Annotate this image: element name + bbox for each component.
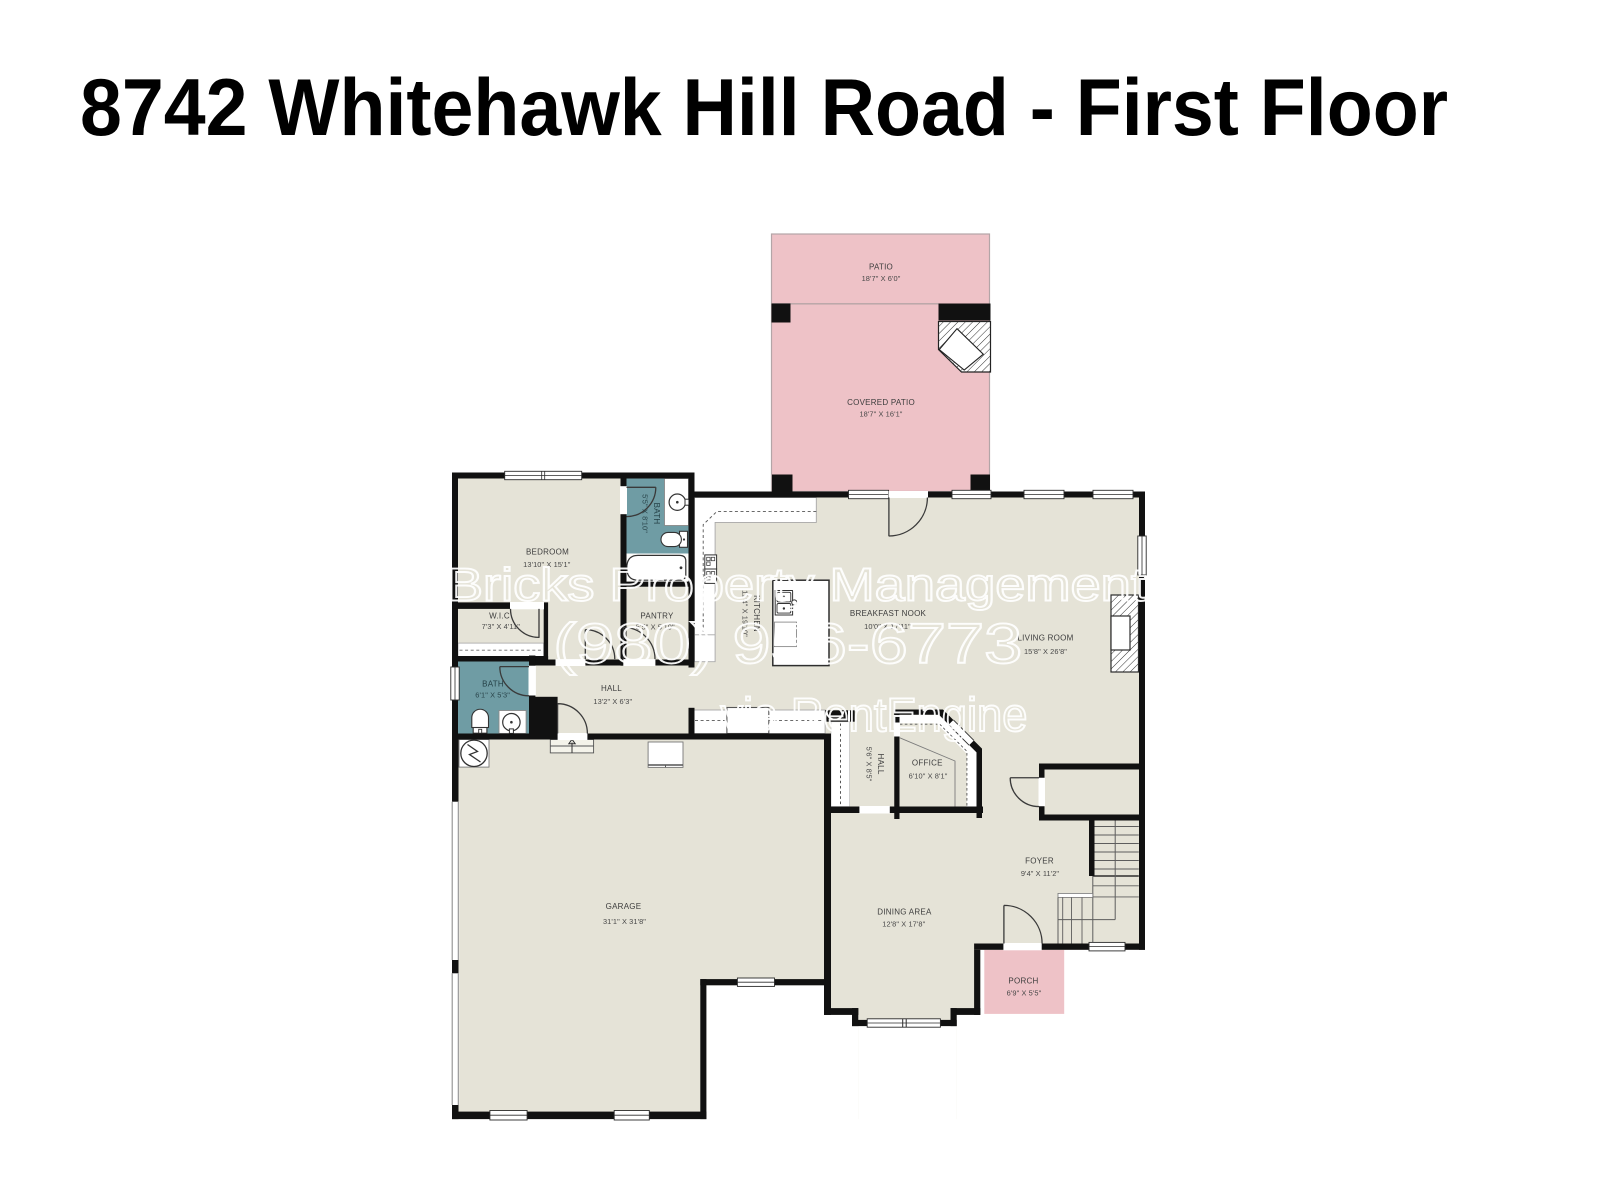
svg-text:PATIO: PATIO: [869, 263, 893, 272]
svg-text:HALL: HALL: [601, 684, 622, 693]
svg-text:COVERED PATIO: COVERED PATIO: [847, 398, 915, 407]
svg-text:6'9" X 5'5": 6'9" X 5'5": [1007, 989, 1042, 998]
svg-text:31'1" X 31'8": 31'1" X 31'8": [603, 917, 646, 926]
svg-text:HALL: HALL: [876, 753, 885, 774]
svg-text:BATH: BATH: [652, 503, 661, 525]
svg-text:OFFICE: OFFICE: [912, 759, 943, 768]
svg-text:(980) 956-6773: (980) 956-6773: [553, 612, 1022, 676]
svg-text:7'3" X 4'11": 7'3" X 4'11": [482, 622, 521, 631]
svg-text:18'7" X 6'0": 18'7" X 6'0": [862, 274, 901, 283]
svg-text:via RentEngine: via RentEngine: [720, 688, 1027, 741]
svg-text:DINING AREA: DINING AREA: [877, 908, 932, 917]
svg-text:6'10" X 8'1": 6'10" X 8'1": [909, 771, 948, 780]
svg-text:8742 Whitehawk Hill Road - Fir: 8742 Whitehawk Hill Road - First Floor: [80, 63, 1448, 153]
svg-text:BEDROOM: BEDROOM: [526, 548, 569, 557]
svg-text:GARAGE: GARAGE: [606, 902, 642, 911]
svg-text:W.I.C: W.I.C: [489, 612, 510, 621]
svg-text:FOYER: FOYER: [1025, 857, 1054, 866]
svg-text:15'8" X 26'8": 15'8" X 26'8": [1024, 647, 1067, 656]
svg-text:18'7" X 16'1": 18'7" X 16'1": [859, 410, 902, 419]
svg-text:BATH: BATH: [482, 680, 504, 689]
svg-text:9'4" X 11'2": 9'4" X 11'2": [1021, 869, 1060, 878]
svg-text:13'2" X 6'3": 13'2" X 6'3": [593, 697, 632, 706]
svg-text:PORCH: PORCH: [1008, 977, 1038, 986]
svg-text:12'8" X 17'8": 12'8" X 17'8": [882, 919, 925, 928]
svg-text:6'1" X 5'3": 6'1" X 5'3": [475, 691, 510, 700]
svg-text:LIVING ROOM: LIVING ROOM: [1017, 634, 1073, 643]
svg-text:Bricks Property Management: Bricks Property Management: [447, 558, 1146, 610]
svg-text:5'6" X 8'5": 5'6" X 8'5": [864, 747, 873, 782]
svg-text:5'5" X 8'10": 5'5" X 8'10": [640, 494, 649, 533]
